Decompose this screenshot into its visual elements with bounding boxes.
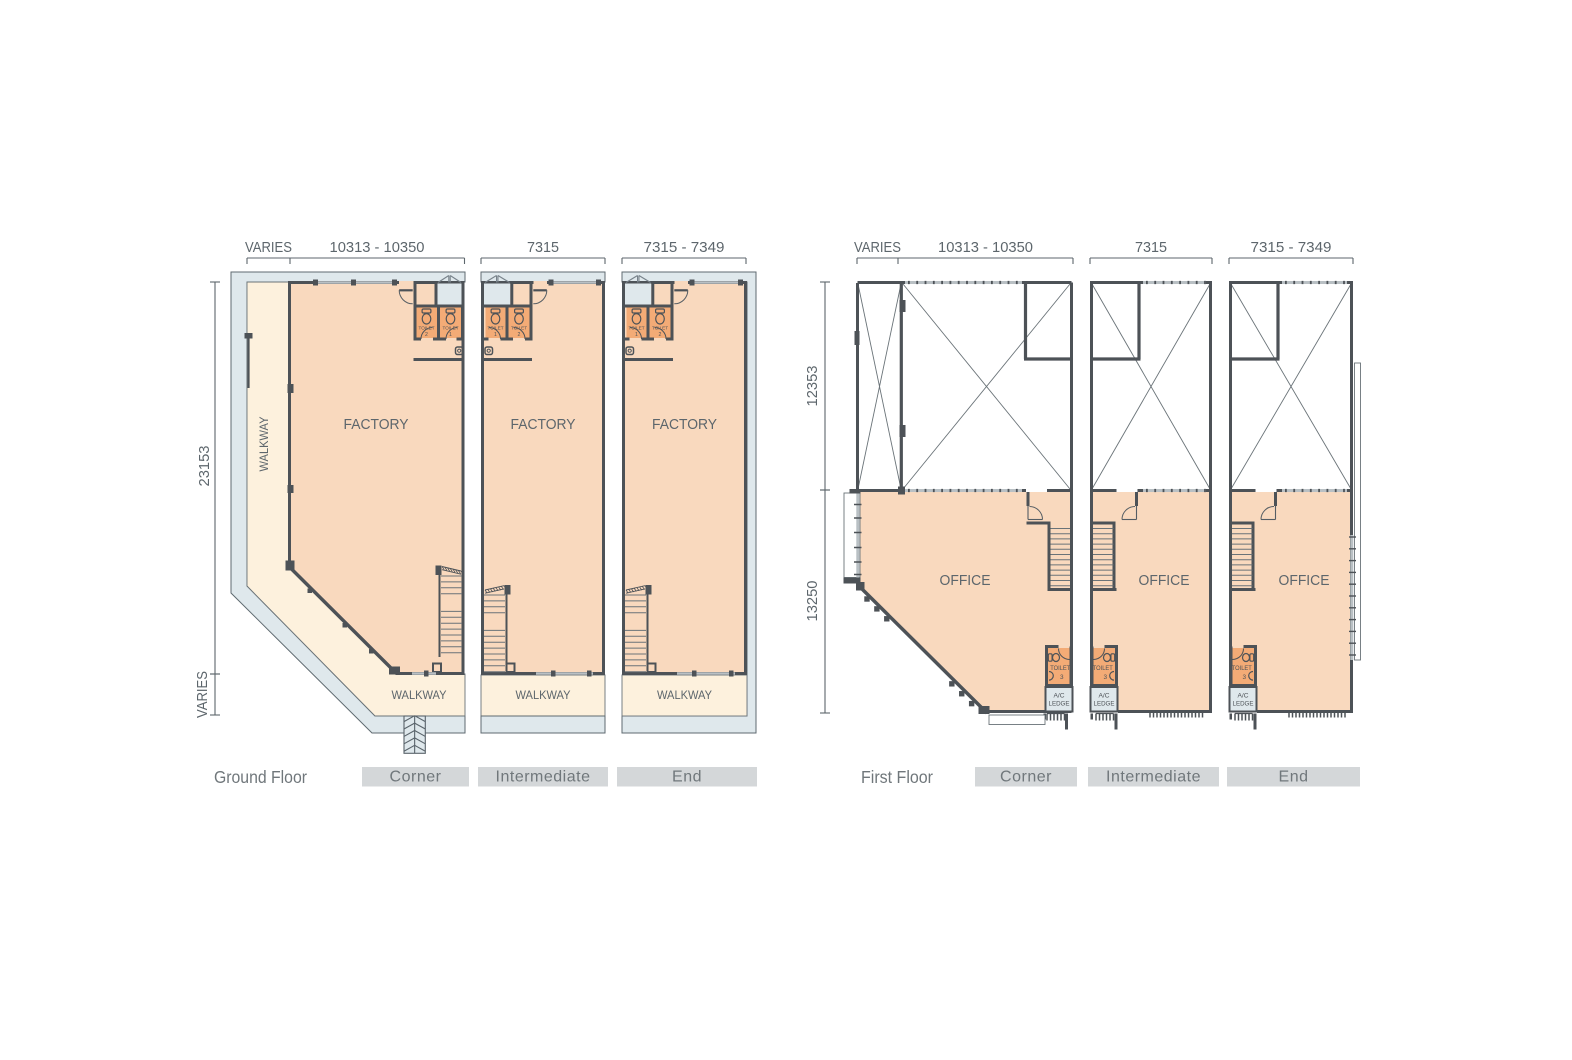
svg-text:First Floor: First Floor [861, 767, 933, 787]
svg-text:WALKWAY: WALKWAY [257, 417, 271, 472]
svg-text:TOILET: TOILET [1232, 665, 1252, 672]
svg-text:OFFICE: OFFICE [940, 573, 991, 589]
svg-text:A/C: A/C [1099, 693, 1110, 700]
svg-text:VARIES: VARIES [245, 240, 292, 256]
svg-text:Intermediate: Intermediate [1106, 769, 1201, 786]
svg-text:2: 2 [659, 332, 662, 338]
svg-text:LEDGE: LEDGE [1094, 701, 1115, 708]
svg-text:7315: 7315 [1135, 240, 1167, 256]
svg-text:1: 1 [449, 332, 452, 338]
svg-text:Intermediate: Intermediate [496, 769, 591, 786]
svg-text:OFFICE: OFFICE [1139, 573, 1190, 589]
svg-text:LEDGE: LEDGE [1049, 701, 1070, 708]
svg-text:Corner: Corner [390, 769, 442, 786]
svg-text:TOILET: TOILET [1093, 665, 1113, 672]
svg-text:TOILET: TOILET [629, 326, 645, 331]
svg-text:10313 - 10350: 10313 - 10350 [938, 240, 1033, 256]
svg-text:7315 - 7349: 7315 - 7349 [644, 240, 725, 256]
svg-text:TOILET: TOILET [511, 326, 527, 331]
svg-text:7315 - 7349: 7315 - 7349 [1251, 240, 1332, 256]
svg-text:3: 3 [1242, 674, 1246, 681]
svg-text:A/C: A/C [1054, 693, 1065, 700]
svg-text:End: End [1279, 769, 1309, 786]
svg-text:10313 - 10350: 10313 - 10350 [330, 240, 425, 256]
svg-text:23153: 23153 [197, 446, 213, 487]
svg-text:End: End [672, 769, 702, 786]
svg-text:FACTORY: FACTORY [652, 417, 717, 433]
svg-text:TOILET: TOILET [488, 326, 504, 331]
svg-text:OFFICE: OFFICE [1279, 573, 1330, 589]
svg-text:2: 2 [518, 332, 521, 338]
svg-text:TOILET: TOILET [1050, 665, 1070, 672]
svg-text:WALKWAY: WALKWAY [657, 688, 712, 702]
svg-text:1: 1 [494, 332, 497, 338]
svg-text:1: 1 [635, 332, 638, 338]
svg-text:3: 3 [1060, 674, 1064, 681]
svg-text:VARIES: VARIES [195, 671, 211, 718]
svg-text:Corner: Corner [1000, 769, 1052, 786]
svg-text:VARIES: VARIES [854, 240, 901, 256]
svg-text:A/C: A/C [1238, 693, 1249, 700]
svg-text:TOILET: TOILET [419, 326, 435, 331]
svg-text:FACTORY: FACTORY [511, 417, 576, 433]
svg-text:Ground Floor: Ground Floor [214, 767, 307, 787]
svg-text:3: 3 [1103, 674, 1107, 681]
svg-text:WALKWAY: WALKWAY [392, 688, 447, 702]
svg-text:TOILET: TOILET [443, 326, 459, 331]
svg-text:2: 2 [425, 332, 428, 338]
svg-text:13250: 13250 [805, 581, 821, 622]
svg-text:LEDGE: LEDGE [1233, 701, 1254, 708]
svg-text:12353: 12353 [805, 366, 821, 407]
svg-text:7315: 7315 [527, 240, 559, 256]
svg-text:TOILET: TOILET [652, 326, 668, 331]
svg-text:WALKWAY: WALKWAY [516, 688, 571, 702]
svg-text:FACTORY: FACTORY [344, 417, 409, 433]
